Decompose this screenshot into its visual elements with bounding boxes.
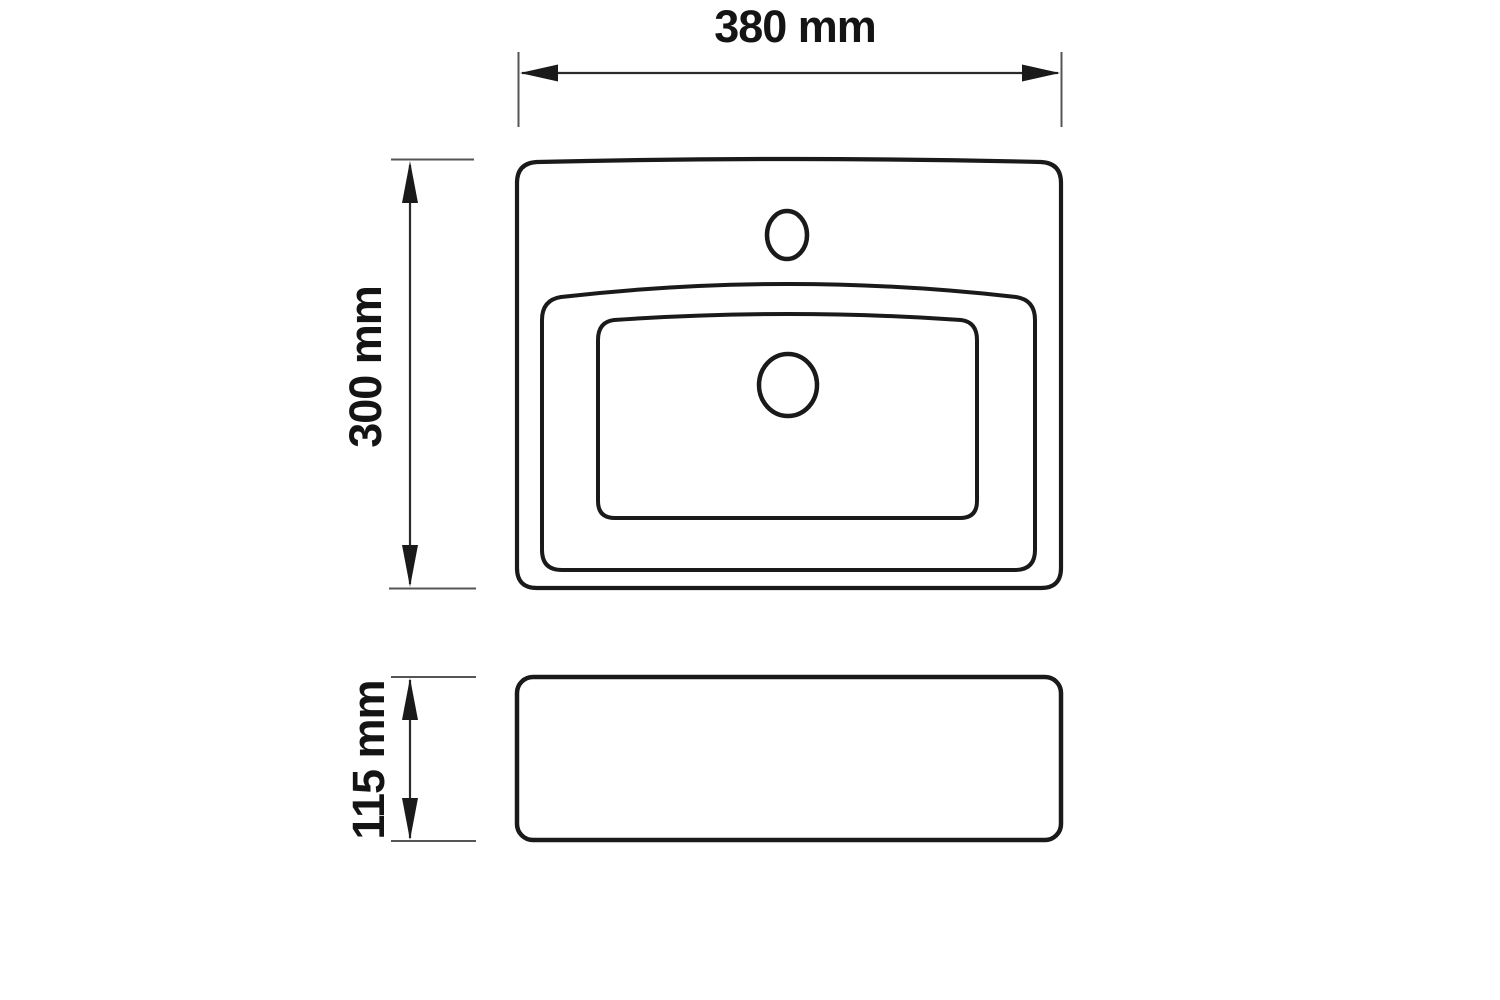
drain-hole [759,354,817,416]
top-view-basin-rim [542,284,1035,570]
depth-dimension [389,160,476,589]
faucet-hole [767,211,807,259]
height-arrowhead-bottom-icon [402,798,418,840]
width-arrowhead-right-icon [1022,65,1060,82]
front-view-outline [517,677,1061,840]
width-arrowhead-left-icon [520,65,558,82]
depth-arrowhead-top-icon [402,161,418,203]
height-dimension [391,677,476,841]
depth-arrowhead-bottom-icon [402,545,418,587]
top-view [517,159,1061,588]
drawing-svg [0,0,1500,1000]
depth-dimension-label: 300 mm [340,286,392,448]
height-dimension-label: 115 mm [343,680,395,839]
height-arrowhead-top-icon [402,678,418,720]
width-dimension-label: 380 mm [714,1,876,53]
washbasin-dimension-drawing: 380 mm 300 mm 115 mm [0,0,1500,1000]
width-dimension [519,52,1062,127]
front-view [517,677,1061,840]
